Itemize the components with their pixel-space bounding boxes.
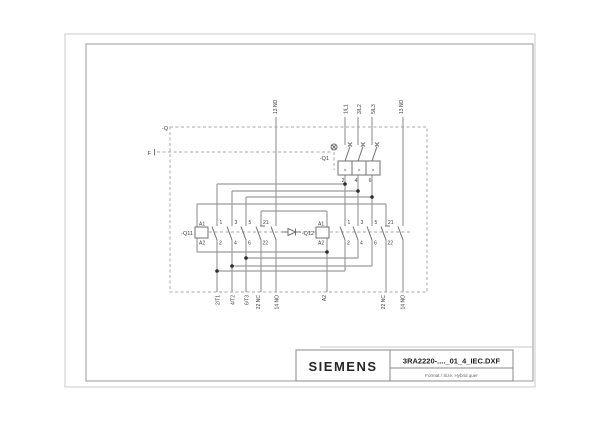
schematic-label: 22 — [263, 241, 269, 247]
schematic-label: 6 — [369, 178, 372, 184]
junction-dots — [215, 182, 374, 273]
schematic-label: 1/L1 — [344, 104, 350, 114]
schematic-label: 22 — [388, 241, 394, 247]
siemens-logo-text: SIEMENS — [308, 359, 377, 374]
schematic-label: 2 — [347, 241, 350, 247]
q12-coil — [316, 227, 329, 238]
schematic-label: 5/L3 — [371, 104, 377, 114]
schematic-label: 2 — [219, 241, 222, 247]
q12-aux-no-contact — [398, 227, 403, 241]
schematic-label: 1 — [348, 220, 351, 226]
schematic-label: A2 — [322, 295, 328, 301]
schematic-label: > — [344, 168, 347, 173]
schematic-label: 4 — [234, 241, 237, 247]
schematic-label: 3 — [235, 220, 238, 226]
schematic-label: 4 — [355, 178, 358, 184]
schematic-label: 2 — [342, 178, 345, 184]
schematic-label: 22 NC — [381, 295, 387, 310]
contactor-q11 — [195, 226, 276, 240]
schematic-label: 14 NO — [401, 295, 407, 310]
schematic-label: A1 — [318, 222, 324, 228]
q11-coil — [195, 227, 208, 238]
q12-nc-contact — [381, 226, 390, 240]
drawing-frame — [86, 44, 533, 381]
schematic-label: 3/L2 — [357, 104, 363, 114]
schematic-label: > — [372, 168, 375, 173]
format-size-text: Format / Size: Hybrid quer — [425, 373, 478, 378]
q11-aux-no-contact — [271, 227, 276, 241]
schematic-label: 1 — [220, 220, 223, 226]
q11-nc-contact — [256, 226, 265, 240]
schematic-label: 21 — [388, 220, 394, 226]
contactor-q12 — [316, 226, 403, 240]
schematic-label: 6 — [374, 241, 377, 247]
semiconductor-icon — [282, 229, 301, 236]
schematic-label: 4 — [360, 241, 363, 247]
schematic-label: 2/T1 — [216, 295, 222, 305]
schematic-label: 6/T3 — [245, 295, 251, 305]
schematic-label: 6 — [248, 241, 251, 247]
schematic-label: A2 — [318, 241, 324, 247]
title-block: SIEMENS 3RA2220-...._01_4_IEC.DXF Format… — [296, 347, 533, 381]
breaker-pole-contacts — [345, 147, 377, 162]
schematic-label: 5 — [375, 220, 378, 226]
schematic-label: -Q12 — [302, 231, 314, 237]
q12-main-contacts — [340, 227, 372, 241]
schematic-label: 14 NO — [275, 295, 281, 310]
schematic-label: > — [358, 168, 361, 173]
schematic-label: -Q11 — [181, 231, 193, 237]
schematic-label: 22 NC — [256, 295, 262, 310]
wires — [197, 117, 403, 292]
schematic-label: 13 NO — [399, 99, 405, 114]
schematic-label: A2 — [199, 241, 205, 247]
drawing-filename: 3RA2220-...._01_4_IEC.DXF — [403, 357, 501, 366]
schematic-label: 3 — [361, 220, 364, 226]
schematic-label: -Q — [162, 126, 169, 132]
schematic-label: A1 — [199, 222, 205, 228]
schematic-label: 21 — [263, 220, 269, 226]
schematic-label: 5 — [249, 220, 252, 226]
wiring-diagram-svg: -QF-Q1-Q11-Q12A1A2A1A2123456212212345621… — [0, 0, 600, 424]
schematic-page: -QF-Q1-Q11-Q12A1A2A1A2123456212212345621… — [0, 0, 600, 424]
operator-cross-icon — [332, 145, 336, 149]
trip-cross-icons — [348, 143, 379, 147]
q11-main-contacts — [212, 227, 246, 241]
schematic-label: -Q1 — [320, 156, 329, 162]
schematic-label: 13 NO — [273, 99, 279, 114]
schematic-label: F — [148, 151, 152, 157]
schematic-label: 4/T2 — [231, 295, 237, 305]
